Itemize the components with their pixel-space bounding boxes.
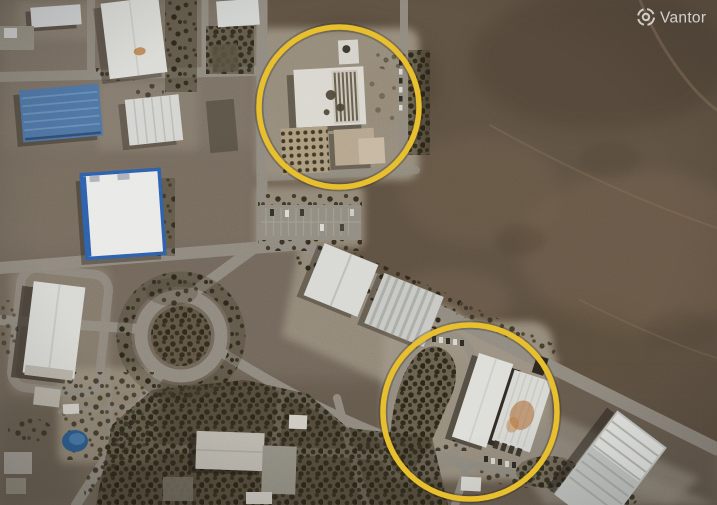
satellite-scene: Vantor — [0, 0, 717, 505]
vantor-brand-text: Vantor — [660, 10, 706, 27]
vignette-overlay — [0, 0, 717, 505]
satellite-image: Vantor — [0, 0, 717, 505]
